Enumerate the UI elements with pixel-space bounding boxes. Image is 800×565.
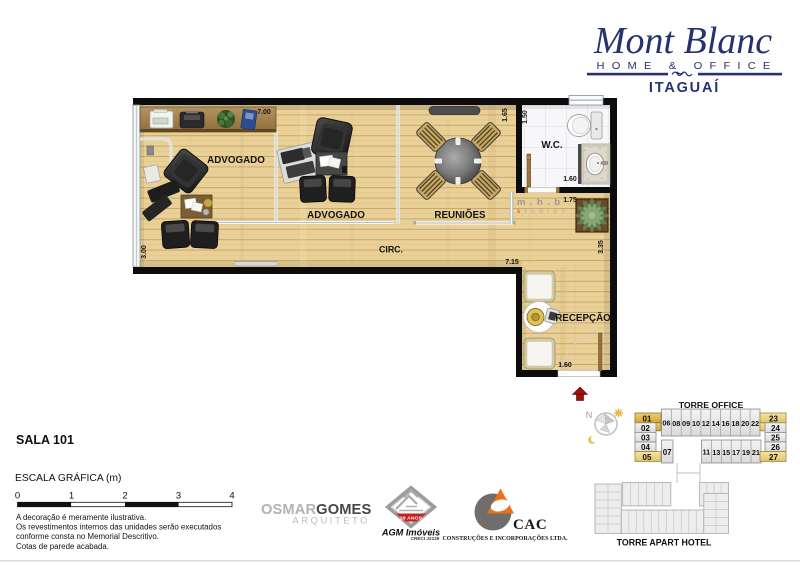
svg-text:HOME & OFFICE: HOME & OFFICE [597, 61, 778, 72]
svg-text:2: 2 [122, 491, 127, 502]
svg-text:1.65: 1.65 [502, 108, 509, 122]
svg-text:W.C.: W.C. [541, 140, 563, 151]
svg-text:1.60: 1.60 [558, 362, 572, 369]
svg-text:Os revestimentos internos das: Os revestimentos internos das unidades s… [16, 523, 221, 532]
svg-text:ITAGUAÍ: ITAGUAÍ [649, 79, 720, 96]
svg-text:22: 22 [751, 419, 759, 428]
svg-text:04: 04 [641, 443, 650, 452]
svg-text:1.60: 1.60 [563, 176, 577, 183]
svg-text:CAC: CAC [513, 517, 547, 533]
svg-text:1: 1 [69, 491, 74, 502]
svg-text:1.50: 1.50 [522, 110, 529, 124]
svg-text:CRECI J2129: CRECI J2129 [411, 536, 440, 541]
svg-text:17: 17 [732, 448, 740, 457]
svg-text:RECEPÇÃO: RECEPÇÃO [555, 313, 611, 324]
svg-text:0: 0 [15, 491, 20, 502]
svg-text:CIRC.: CIRC. [379, 245, 403, 255]
svg-text:20: 20 [741, 419, 749, 428]
svg-text:18: 18 [731, 419, 739, 428]
svg-text:19: 19 [742, 448, 750, 457]
svg-text:23: 23 [769, 414, 778, 423]
svg-text:07: 07 [663, 448, 672, 457]
svg-text:16: 16 [721, 419, 729, 428]
svg-text:ESCALA GRÁFICA (m): ESCALA GRÁFICA (m) [15, 471, 121, 484]
svg-text:3.00: 3.00 [141, 245, 148, 259]
svg-text:03: 03 [641, 434, 650, 443]
svg-text:7.00: 7.00 [257, 109, 271, 116]
svg-text:26: 26 [771, 443, 780, 452]
svg-text:05: 05 [643, 453, 652, 462]
svg-text:SALA 101: SALA 101 [16, 433, 74, 447]
svg-text:01: 01 [643, 414, 652, 423]
svg-text:15: 15 [722, 448, 730, 457]
svg-text:Mont Blanc: Mont Blanc [593, 20, 772, 62]
svg-text:27: 27 [769, 453, 778, 462]
svg-text:7.15: 7.15 [505, 259, 519, 266]
svg-text:ADVOGADO: ADVOGADO [207, 155, 265, 166]
svg-text:09: 09 [682, 419, 690, 428]
svg-text:08: 08 [672, 419, 680, 428]
svg-text:11: 11 [703, 448, 711, 457]
svg-text:3: 3 [176, 491, 181, 502]
svg-text:13: 13 [712, 448, 720, 457]
svg-text:12: 12 [702, 419, 710, 428]
svg-text:3.35: 3.35 [598, 240, 605, 254]
svg-text:m . h . b: m . h . b [517, 197, 561, 208]
svg-text:02: 02 [641, 424, 650, 433]
svg-text:14: 14 [712, 419, 721, 428]
svg-text:TORRE APART HOTEL: TORRE APART HOTEL [617, 538, 712, 548]
svg-text:conforme consta no Memorial De: conforme consta no Memorial Descritivo. [16, 532, 159, 541]
svg-text:21: 21 [752, 448, 760, 457]
svg-text:24: 24 [771, 424, 780, 433]
svg-text:29 ANOS: 29 ANOS [400, 516, 423, 522]
svg-text:06: 06 [662, 419, 670, 428]
svg-text:TORRE OFFICE: TORRE OFFICE [679, 400, 744, 410]
svg-text:ADVOGADO: ADVOGADO [307, 210, 365, 221]
svg-text:REUNIÕES: REUNIÕES [434, 210, 486, 221]
svg-text:N: N [586, 410, 593, 420]
svg-text:ARQUITETO: ARQUITETO [293, 516, 370, 526]
svg-text:Cotas de parede acabada.: Cotas de parede acabada. [16, 542, 109, 551]
svg-text:4: 4 [229, 491, 234, 502]
svg-text:s t u d i o s: s t u d i o s [517, 208, 566, 215]
svg-text:A decoração é meramente ilustr: A decoração é meramente ilustrativa. [16, 513, 146, 522]
svg-text:10: 10 [692, 419, 700, 428]
svg-text:1.75: 1.75 [563, 197, 577, 204]
svg-text:25: 25 [771, 434, 780, 443]
